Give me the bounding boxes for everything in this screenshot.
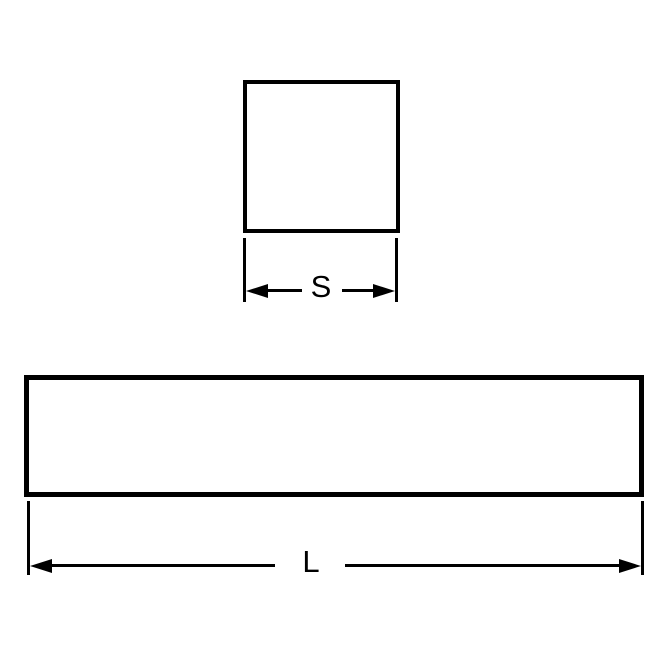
l-extension-line-right: [641, 501, 644, 575]
s-extension-line-right: [395, 238, 398, 302]
square-cross-section-outline: [243, 80, 400, 233]
l-dimension-line-left: [48, 564, 275, 567]
s-dimension-label: S: [296, 271, 346, 302]
bar-length-outline: [24, 375, 644, 497]
l-dimension-line-right: [345, 564, 619, 567]
l-arrowhead-right-icon: [619, 559, 641, 573]
l-dimension-label: L: [285, 546, 337, 577]
keystock-dimension-drawing: S L: [0, 0, 670, 670]
s-dimension-line-right: [342, 289, 377, 292]
s-arrowhead-right-icon: [373, 284, 395, 298]
